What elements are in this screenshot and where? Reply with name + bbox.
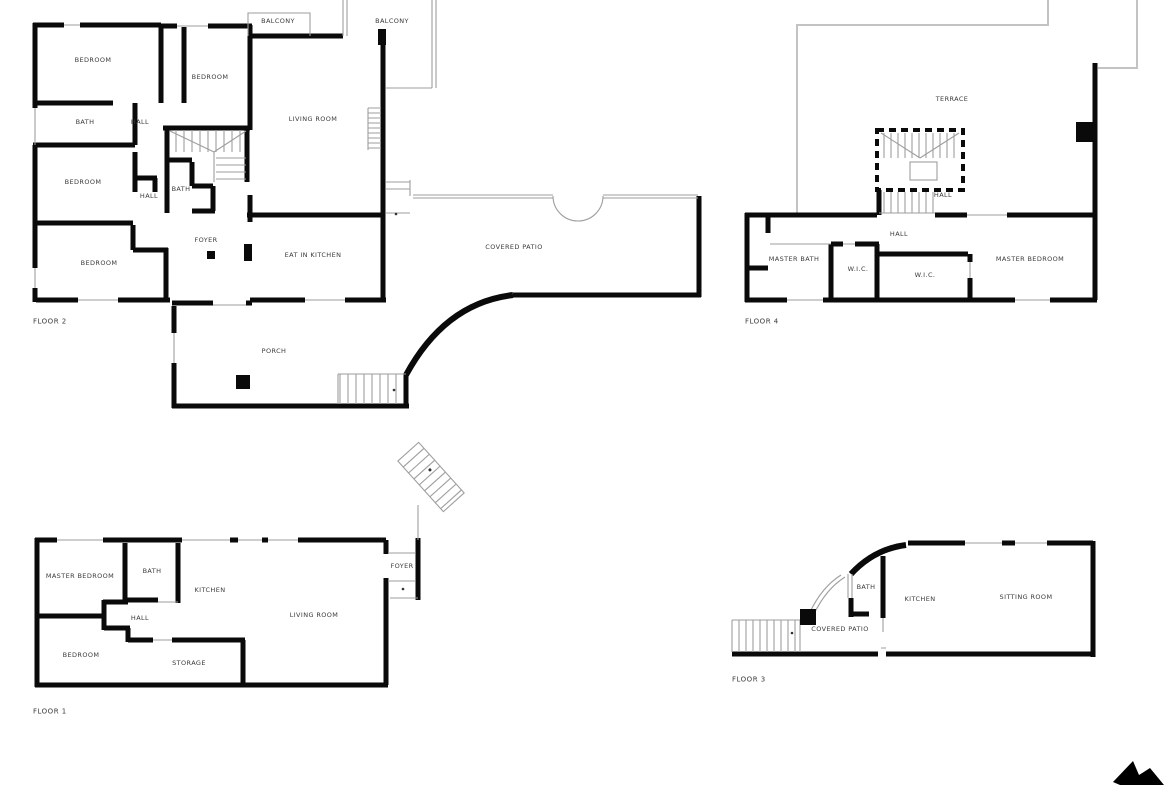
room-label-bath-upper-f2: BATH xyxy=(76,119,95,126)
room-label-bedroom-f1: BEDROOM xyxy=(63,652,100,659)
floor-3-title: FLOOR 3 xyxy=(732,677,766,684)
room-label-foyer-f1: FOYER xyxy=(390,563,413,570)
room-label-wic-2: W.I.C. xyxy=(915,272,936,279)
room-label-balcony-right: BALCONY xyxy=(375,18,409,25)
room-label-covered-patio-f2: COVERED PATIO xyxy=(485,244,542,251)
room-label-bedroom-tl: BEDROOM xyxy=(75,57,112,64)
floor-1-entry-stairs xyxy=(398,442,464,511)
room-label-master-bedroom-f1: MASTER BEDROOM xyxy=(46,573,114,580)
floor-2-wall-stub xyxy=(248,29,382,261)
room-label-bedroom-mid: BEDROOM xyxy=(65,179,102,186)
room-label-bath-f1: BATH xyxy=(143,568,162,575)
floor-1-entry-stairs-outline xyxy=(398,442,464,511)
floor-2-door-arc xyxy=(553,196,603,221)
floor-4-chimney xyxy=(1076,122,1095,142)
room-label-kitchen-f1: KITCHEN xyxy=(195,587,226,594)
floor-1-entry-stairs-marker xyxy=(428,468,432,472)
room-label-bath-f3: BATH xyxy=(857,584,876,591)
room-label-hall-upper-f4: HALL xyxy=(934,192,952,199)
room-label-terrace: TERRACE xyxy=(936,96,969,103)
room-label-porch: PORCH xyxy=(262,348,287,355)
room-label-wic-1: W.I.C. xyxy=(848,266,869,273)
room-label-master-bedroom-f4: MASTER BEDROOM xyxy=(996,256,1064,263)
room-label-kitchen-f3: KITCHEN xyxy=(905,596,936,603)
floor-3-railing-curve xyxy=(810,575,845,614)
floor-2-plan xyxy=(33,0,701,408)
room-label-bedroom-bl: BEDROOM xyxy=(81,260,118,267)
floor-2-thin-lines xyxy=(35,0,698,404)
floor-2-stair-marker xyxy=(393,389,396,392)
room-label-hall-lower-f2: HALL xyxy=(140,193,158,200)
floor-1-foyer-marker xyxy=(402,588,405,591)
room-label-hall-f1: HALL xyxy=(131,615,149,622)
floor-4-title: FLOOR 4 xyxy=(745,319,779,326)
floor-2-walls xyxy=(33,23,701,408)
room-label-hall-f4: HALL xyxy=(890,231,908,238)
room-label-sitting-room: SITTING ROOM xyxy=(1000,594,1053,601)
floor-2-porch-pillar xyxy=(236,375,250,389)
floorplan-drawing xyxy=(0,0,1170,785)
room-label-eat-in-kitchen: EAT IN KITCHEN xyxy=(285,252,342,259)
room-label-bath-lower-f2: BATH xyxy=(172,186,191,193)
room-label-balcony-left: BALCONY xyxy=(261,18,295,25)
floor-3-curved-wall xyxy=(851,545,906,574)
floor-2-step-marker xyxy=(395,213,398,216)
cursor-arrow-icon xyxy=(1113,761,1164,785)
room-label-covered-patio-f3: COVERED PATIO xyxy=(811,626,868,633)
room-label-master-bath: MASTER BATH xyxy=(769,256,820,263)
floor-2-foyer-post xyxy=(207,251,215,259)
floor-2-curved-patio-wall xyxy=(406,295,513,375)
floorplan-sheet: BALCONY BALCONY BEDROOM BEDROOM LIVING R… xyxy=(0,0,1170,785)
floor-1-walls xyxy=(35,538,418,687)
room-label-bedroom-tm: BEDROOM xyxy=(192,74,229,81)
room-label-foyer-f2: FOYER xyxy=(194,237,217,244)
room-label-storage: STORAGE xyxy=(172,660,206,667)
floor-1-title: FLOOR 1 xyxy=(33,709,67,716)
room-label-living-room-f1: LIVING ROOM xyxy=(290,612,339,619)
floor-3-patio-pillar xyxy=(800,609,816,625)
floor-2-title: FLOOR 2 xyxy=(33,319,67,326)
room-label-living-room-f2: LIVING ROOM xyxy=(289,116,338,123)
floor-4-stair-landing xyxy=(910,162,937,180)
floor-3-stair-marker xyxy=(791,632,794,635)
floor-4-terrace-outline xyxy=(797,0,1137,215)
room-label-hall-upper-f2: HALL xyxy=(131,119,149,126)
